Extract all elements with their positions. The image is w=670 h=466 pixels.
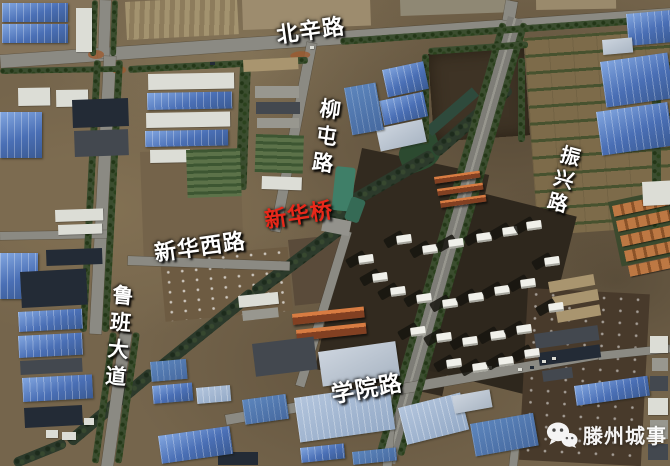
tree-line [518, 58, 525, 142]
canal-segment [12, 438, 68, 466]
blue-roof-warehouse [0, 112, 42, 158]
white-building [58, 223, 102, 235]
light-roof-warehouse [602, 37, 633, 55]
white-building [648, 398, 668, 415]
blue-roof-building [242, 394, 289, 425]
gray-roof-building [650, 376, 668, 391]
white-building [650, 336, 668, 353]
dark-roof-building [24, 405, 83, 428]
blue-roof-warehouse [600, 53, 670, 108]
gray-building [652, 358, 668, 371]
crop-field [186, 148, 242, 198]
white-building [552, 357, 556, 360]
crop-field [255, 134, 304, 174]
terrain-patch [536, 0, 616, 10]
pale-blue-warehouse [196, 385, 231, 404]
blue-roof-warehouse [2, 3, 68, 22]
blue-roof-warehouse [145, 130, 228, 147]
blue-roof-warehouse [300, 443, 345, 463]
white-building [76, 8, 92, 52]
dark-roof-building [210, 62, 215, 65]
tree-line [0, 66, 120, 74]
white-building [542, 360, 546, 363]
gray-roof-building [256, 102, 300, 114]
gray-building [255, 86, 299, 98]
white-building [62, 432, 76, 440]
blue-roof-warehouse [18, 333, 83, 358]
blue-roof-warehouse [2, 24, 68, 43]
blue-roof-warehouse [596, 102, 670, 156]
wechat-icon [546, 421, 578, 449]
blue-roof-warehouse [147, 92, 232, 110]
dark-roof-building [20, 269, 88, 308]
white-building [18, 87, 50, 106]
white-building [518, 368, 522, 371]
white-building [262, 176, 302, 190]
dark-roof-building [72, 98, 129, 128]
terrain-patch [400, 0, 510, 16]
gray-roof-building [74, 129, 129, 157]
gray-roof-building [20, 358, 83, 375]
satellite-map: 北辛路 柳屯路 振兴路 新华桥 新华西路 鲁班大道 学院路 滕州城事 [0, 0, 670, 466]
white-building [84, 418, 94, 425]
dark-roof-building [46, 248, 103, 266]
white-building [642, 181, 670, 206]
tan-building [243, 57, 299, 72]
plowed-field [125, 0, 239, 40]
blue-roof-building [344, 82, 384, 135]
blue-roof-warehouse [626, 10, 670, 46]
white-building [46, 430, 58, 438]
white-building [310, 46, 314, 49]
blue-roof-warehouse [22, 374, 93, 402]
white-building [148, 72, 234, 89]
white-building [55, 208, 103, 222]
blue-roof-warehouse [18, 309, 83, 332]
white-building [146, 112, 230, 128]
watermark-text: 滕州城事 [583, 420, 667, 449]
gray-building [257, 118, 299, 128]
dark-roof-building [530, 366, 534, 369]
white-building [150, 149, 190, 163]
blue-roof-warehouse [152, 383, 193, 404]
watermark: 滕州城事 [546, 420, 667, 449]
blue-roof-building [150, 359, 188, 382]
